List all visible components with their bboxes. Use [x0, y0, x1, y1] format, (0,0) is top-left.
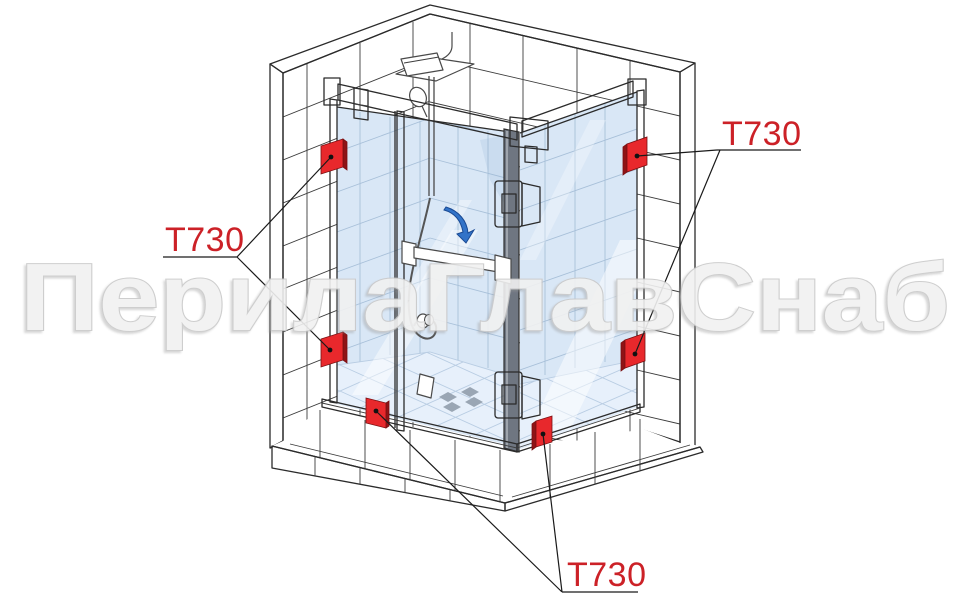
- shower-enclosure-diagram: Т730 Т730 Т730 ПерилаГлавСнаб: [0, 0, 970, 606]
- lower-sprayer: [417, 374, 434, 398]
- screenshot-root: Т730 Т730 Т730 ПерилаГлавСнаб: [0, 0, 970, 606]
- label-t730-bottom: Т730: [567, 556, 647, 594]
- label-t730-top-right: Т730: [722, 115, 802, 153]
- watermark: ПерилаГлавСнаб: [20, 244, 950, 351]
